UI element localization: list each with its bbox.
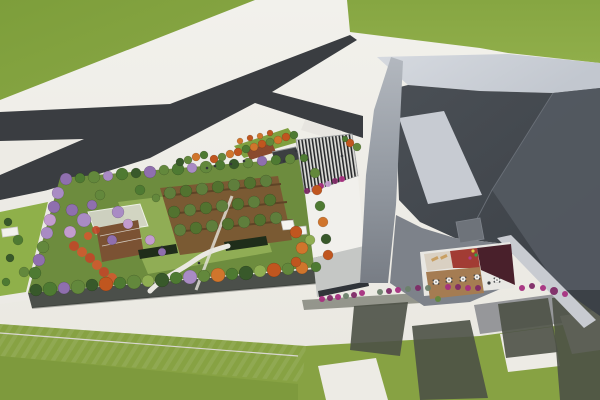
bush	[425, 285, 431, 291]
bush	[529, 283, 535, 289]
flower-patch	[77, 247, 87, 257]
tree	[212, 181, 224, 193]
person-dot	[283, 160, 286, 163]
bush	[359, 290, 365, 296]
tree	[183, 270, 197, 284]
courtyard-figure	[487, 281, 490, 284]
tree	[33, 254, 45, 266]
tree	[210, 155, 218, 163]
bush	[519, 285, 525, 291]
tree	[232, 198, 244, 210]
tree	[116, 168, 128, 180]
flower-patch	[84, 232, 92, 240]
tree	[226, 150, 234, 158]
tree	[29, 267, 41, 279]
tree	[114, 277, 126, 289]
tree	[290, 131, 298, 139]
courtyard-figure	[468, 256, 471, 259]
tree	[135, 185, 145, 195]
tree	[267, 263, 281, 277]
tree	[158, 248, 166, 256]
tree	[164, 187, 176, 199]
tree	[353, 143, 361, 151]
tree	[211, 268, 225, 282]
bush	[386, 288, 392, 294]
person-dot	[198, 262, 201, 265]
tree	[43, 282, 57, 296]
person-dot	[303, 152, 306, 155]
tree	[266, 138, 274, 146]
tree	[290, 226, 302, 238]
tree	[71, 280, 85, 294]
tree	[41, 227, 53, 239]
tree	[311, 262, 321, 272]
tree	[196, 183, 208, 195]
bush	[562, 291, 568, 297]
tree	[184, 156, 192, 164]
tree	[206, 220, 218, 232]
bush	[377, 289, 383, 295]
cafe-table	[433, 279, 440, 284]
table-center	[448, 279, 450, 281]
cafe-table	[494, 277, 501, 282]
tree	[238, 216, 250, 228]
tree	[4, 218, 12, 226]
cafe-table	[446, 277, 453, 282]
bush	[550, 287, 558, 295]
roof-vent-box	[456, 218, 484, 243]
tree	[218, 153, 226, 161]
bush	[327, 295, 333, 301]
tree	[254, 214, 266, 226]
tree	[248, 196, 260, 208]
bush	[335, 294, 341, 300]
tree	[323, 250, 333, 260]
tree	[228, 179, 240, 191]
bush	[325, 181, 331, 187]
bush	[445, 284, 451, 290]
tree	[88, 171, 100, 183]
tree	[44, 214, 56, 226]
tree	[19, 267, 29, 277]
tree	[127, 275, 141, 289]
tree	[305, 235, 315, 245]
tree	[242, 145, 250, 153]
tree	[58, 282, 70, 294]
tree	[184, 204, 196, 216]
tree	[282, 133, 290, 141]
tree	[13, 235, 23, 245]
bush	[405, 286, 411, 292]
tree	[145, 235, 155, 245]
person-dot	[243, 160, 246, 163]
flower-patch	[99, 267, 109, 277]
tree	[318, 217, 328, 227]
site-render-canvas	[0, 0, 600, 400]
tree	[267, 130, 273, 136]
tree	[99, 277, 113, 291]
bush	[319, 296, 325, 302]
tree	[260, 175, 272, 187]
person-dot	[341, 155, 344, 158]
tree	[6, 254, 14, 262]
tree	[270, 212, 282, 224]
tree	[300, 154, 308, 162]
tree	[66, 204, 78, 216]
table-center	[476, 276, 478, 278]
cafe-table	[460, 276, 467, 281]
tree	[200, 151, 208, 159]
tree	[52, 187, 64, 199]
tree	[192, 153, 200, 161]
tree	[296, 242, 308, 254]
architectural-aerial-render	[0, 0, 600, 400]
tree	[2, 278, 10, 286]
tree	[77, 213, 91, 227]
bush	[332, 178, 338, 184]
bush	[475, 285, 481, 291]
tree	[258, 140, 266, 148]
tree	[247, 135, 253, 141]
tree	[112, 206, 124, 218]
flower-patch	[92, 226, 100, 234]
tree	[159, 165, 169, 175]
bush	[455, 284, 461, 290]
bush	[339, 176, 345, 182]
bush	[435, 296, 441, 302]
person-dot	[230, 163, 233, 166]
table-center	[462, 278, 464, 280]
tree	[200, 202, 212, 214]
tree	[222, 218, 234, 230]
tree	[144, 166, 156, 178]
tree	[107, 235, 117, 245]
tree	[60, 173, 72, 185]
tree	[64, 226, 76, 238]
tree	[131, 168, 141, 178]
tree	[103, 171, 113, 181]
person-dot	[214, 165, 217, 168]
courtyard-figure	[474, 253, 477, 256]
tree	[237, 138, 243, 144]
tree	[190, 222, 202, 234]
table-center	[435, 281, 437, 283]
tree	[48, 201, 60, 213]
bush	[465, 285, 471, 291]
person-dot	[295, 150, 298, 153]
terrace-red-floor	[450, 248, 480, 268]
cafe-table	[474, 274, 481, 279]
tree	[321, 234, 331, 244]
person-dot	[206, 167, 209, 170]
tree	[37, 241, 49, 253]
tree	[243, 158, 253, 168]
tree	[155, 273, 169, 287]
tree	[174, 224, 186, 236]
tree	[264, 194, 276, 206]
tree	[312, 185, 322, 195]
tree	[257, 133, 263, 139]
tree	[168, 206, 180, 218]
tree	[95, 190, 105, 200]
tree	[200, 161, 212, 173]
tree	[244, 177, 256, 189]
bush	[395, 287, 401, 293]
flower-patch	[69, 241, 79, 251]
tree	[198, 270, 210, 282]
tree	[285, 154, 295, 164]
tree	[86, 279, 98, 291]
tree	[239, 266, 253, 280]
bush	[415, 285, 421, 291]
person-dot	[161, 246, 164, 249]
tree	[142, 275, 154, 287]
tree	[187, 163, 197, 173]
bush	[304, 188, 310, 194]
bush	[343, 293, 349, 299]
tree	[310, 168, 320, 178]
bush	[540, 285, 546, 291]
tree	[87, 200, 97, 210]
tree	[291, 257, 301, 267]
tree	[180, 185, 192, 197]
tree	[170, 272, 182, 284]
table-center	[496, 279, 498, 281]
tree	[274, 136, 282, 144]
tree	[176, 158, 184, 166]
courtyard-figure	[471, 249, 474, 252]
tree	[152, 194, 160, 202]
tree	[254, 265, 266, 277]
tree	[123, 219, 133, 229]
tree	[30, 284, 42, 296]
tree	[250, 143, 258, 151]
tree	[315, 201, 325, 211]
tree	[234, 148, 242, 156]
bush	[351, 292, 357, 298]
tree	[226, 268, 238, 280]
tree	[271, 155, 281, 165]
tree	[75, 173, 85, 183]
tree	[257, 156, 267, 166]
terrace-cream-floor	[424, 251, 453, 271]
tree	[216, 200, 228, 212]
tree	[342, 136, 348, 142]
